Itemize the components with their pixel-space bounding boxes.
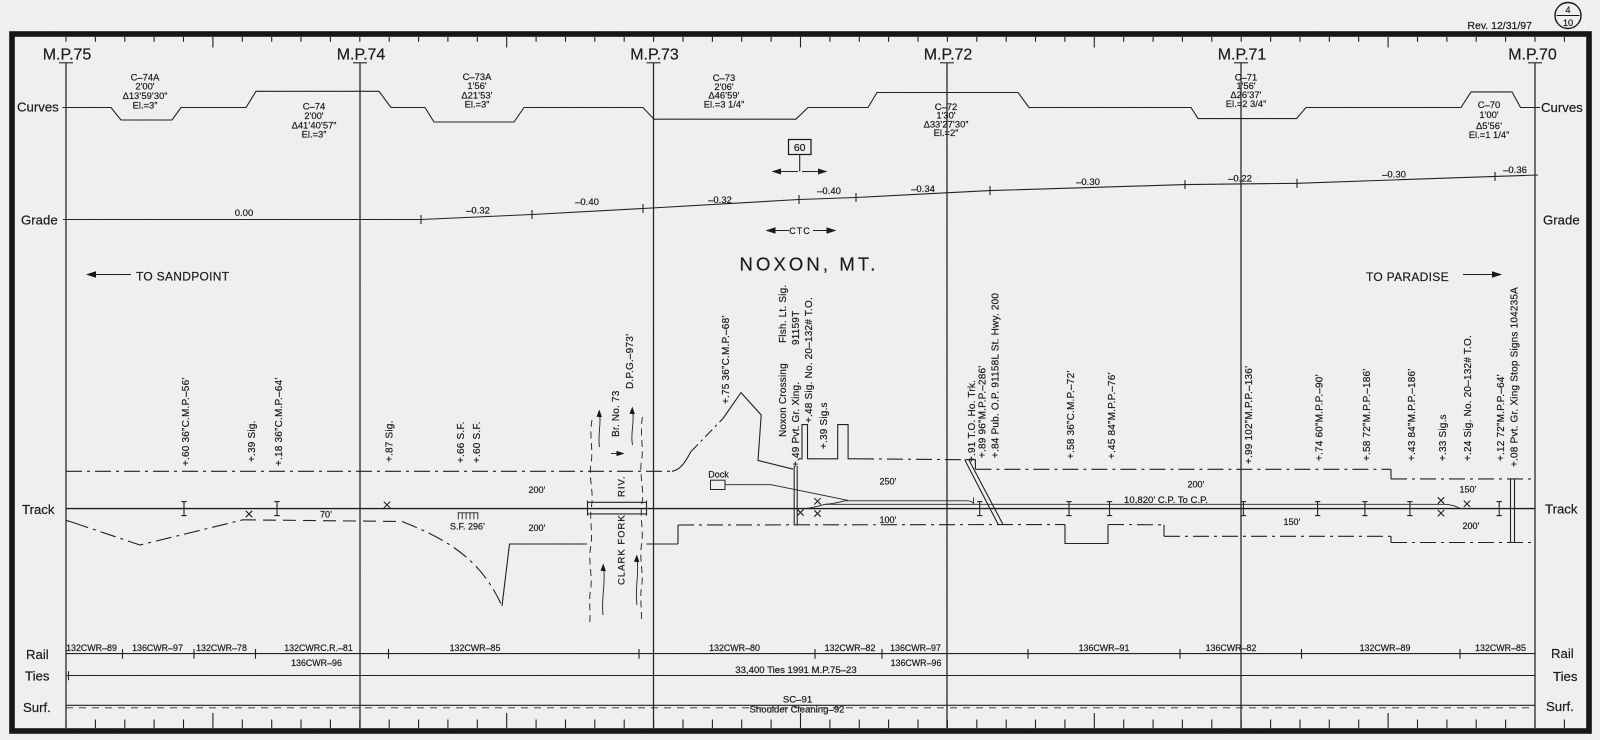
svg-text:+.75 36”C.M.P.–68’: +.75 36”C.M.P.–68’ bbox=[721, 315, 732, 404]
svg-text:132CWR–89: 132CWR–89 bbox=[1360, 643, 1411, 653]
svg-text:El.=3 1/4”: El.=3 1/4” bbox=[704, 99, 744, 110]
svg-text:Track: Track bbox=[22, 502, 55, 517]
svg-text:Br. No. 73: Br. No. 73 bbox=[611, 390, 622, 437]
svg-text:El.=1 1/4”: El.=1 1/4” bbox=[1469, 129, 1509, 140]
svg-text:+.48 Sig. No. 20–132# T.O.: +.48 Sig. No. 20–132# T.O. bbox=[804, 297, 815, 423]
svg-text:CLARK FORK: CLARK FORK bbox=[617, 514, 628, 585]
svg-text:+.66 S.F.: +.66 S.F. bbox=[456, 421, 467, 463]
svg-text:–0.22: –0.22 bbox=[1228, 174, 1252, 185]
svg-text:132CWR–78: 132CWR–78 bbox=[196, 643, 247, 653]
svg-text:1'00': 1'00' bbox=[1479, 109, 1498, 120]
svg-text:136CWR–82: 136CWR–82 bbox=[1206, 643, 1257, 653]
svg-text:El.=2 3/4”: El.=2 3/4” bbox=[1226, 98, 1266, 109]
svg-text:–0.30: –0.30 bbox=[1076, 177, 1100, 188]
svg-text:+.08 Pvt. Gr. Xing Stop Signs: +.08 Pvt. Gr. Xing Stop Signs 104235A bbox=[1510, 287, 1521, 467]
svg-text:+.84 Pub. O.P. 91158L St. Hwy.: +.84 Pub. O.P. 91158L St. Hwy. 200 bbox=[991, 293, 1002, 458]
svg-text:M.P.71: M.P.71 bbox=[1218, 47, 1267, 64]
svg-text:–0.34: –0.34 bbox=[911, 184, 935, 195]
svg-text:136CWR–96: 136CWR–96 bbox=[291, 658, 342, 668]
svg-text:200’: 200’ bbox=[528, 485, 545, 495]
svg-text:–0.32: –0.32 bbox=[708, 195, 732, 206]
svg-text:+.58 36”C.M.P.–72’: +.58 36”C.M.P.–72’ bbox=[1066, 370, 1077, 459]
svg-text:El.=2”: El.=2” bbox=[934, 127, 959, 138]
svg-text:D.P.G.–973’: D.P.G.–973’ bbox=[625, 334, 636, 389]
svg-text:Grade: Grade bbox=[1543, 213, 1580, 228]
svg-text:136CWR–91: 136CWR–91 bbox=[1079, 643, 1130, 653]
svg-text:+.58 72”M.P.P.–186’: +.58 72”M.P.P.–186’ bbox=[1362, 368, 1373, 461]
svg-text:CTC: CTC bbox=[789, 226, 811, 236]
svg-text:–0.40: –0.40 bbox=[817, 186, 841, 197]
svg-text:10,820’ C.P. To C.P.: 10,820’ C.P. To C.P. bbox=[1124, 495, 1208, 506]
svg-text:100’: 100’ bbox=[879, 515, 896, 525]
svg-text:0.00: 0.00 bbox=[235, 208, 254, 219]
svg-text:+.87 Sig.: +.87 Sig. bbox=[385, 420, 396, 462]
svg-text:+.60 S.F.: +.60 S.F. bbox=[472, 421, 483, 463]
svg-text:El.=3”: El.=3” bbox=[133, 99, 158, 110]
svg-text:4: 4 bbox=[1565, 5, 1570, 15]
svg-text:+.39 Sig.s: +.39 Sig.s bbox=[819, 402, 830, 449]
svg-text:NOXON, MT.: NOXON, MT. bbox=[740, 254, 879, 275]
svg-text:200’: 200’ bbox=[1187, 480, 1204, 490]
svg-text:M.P.74: M.P.74 bbox=[337, 47, 386, 64]
svg-text:150’: 150’ bbox=[1283, 517, 1300, 527]
svg-text:132CWR–80: 132CWR–80 bbox=[709, 643, 760, 653]
svg-text:136CWR–97: 136CWR–97 bbox=[132, 643, 183, 653]
svg-text:132CWR–82: 132CWR–82 bbox=[825, 643, 876, 653]
svg-text:+.89 96”M.P.P.–286’: +.89 96”M.P.P.–286’ bbox=[978, 365, 989, 458]
svg-text:+.24 Sig. No. 20–132# T.O.: +.24 Sig. No. 20–132# T.O. bbox=[1463, 335, 1474, 461]
svg-text:Surf.: Surf. bbox=[23, 700, 51, 715]
svg-text:Ties: Ties bbox=[1553, 669, 1578, 684]
svg-text:+.39 Sig.: +.39 Sig. bbox=[247, 420, 258, 462]
svg-text:M.P.73: M.P.73 bbox=[630, 47, 679, 64]
svg-text:–0.36: –0.36 bbox=[1503, 165, 1527, 176]
svg-text:Ties: Ties bbox=[25, 669, 50, 684]
svg-text:Rail: Rail bbox=[1551, 646, 1574, 661]
svg-text:Flsh. Lt. Sig.: Flsh. Lt. Sig. bbox=[778, 285, 789, 343]
svg-text:70’: 70’ bbox=[320, 510, 332, 520]
svg-text:Shoulder Cleaning–92: Shoulder Cleaning–92 bbox=[750, 704, 845, 715]
svg-text:132CWR–85: 132CWR–85 bbox=[1475, 643, 1526, 653]
svg-text:91159T: 91159T bbox=[791, 311, 802, 345]
svg-text:M.P.72: M.P.72 bbox=[924, 47, 973, 64]
svg-text:200’: 200’ bbox=[528, 523, 545, 533]
svg-text:El.=3”: El.=3” bbox=[302, 129, 327, 140]
svg-text:–0.40: –0.40 bbox=[575, 197, 599, 208]
svg-text:+.18 36”C.M.P.–64’: +.18 36”C.M.P.–64’ bbox=[274, 377, 285, 466]
svg-text:M.P.75: M.P.75 bbox=[43, 47, 92, 64]
svg-text:S.F. 296’: S.F. 296’ bbox=[450, 522, 485, 532]
svg-text:+.43 84”M.P.P.–186’: +.43 84”M.P.P.–186’ bbox=[1407, 368, 1418, 461]
svg-text:132CWR–89: 132CWR–89 bbox=[66, 643, 117, 653]
svg-text:+.33 Sig.s: +.33 Sig.s bbox=[1438, 414, 1449, 461]
svg-text:250’: 250’ bbox=[879, 477, 896, 487]
svg-text:Rev. 12/31/97: Rev. 12/31/97 bbox=[1467, 20, 1532, 32]
svg-text:Surf.: Surf. bbox=[1546, 699, 1574, 714]
svg-text:Curves: Curves bbox=[1541, 100, 1583, 115]
svg-text:136CWR–96: 136CWR–96 bbox=[891, 658, 942, 668]
svg-text:+.45 84”M.P.P.–76’: +.45 84”M.P.P.–76’ bbox=[1107, 372, 1118, 459]
svg-text:200’: 200’ bbox=[1462, 521, 1479, 531]
svg-text:132CWRC.R.–81: 132CWRC.R.–81 bbox=[284, 643, 353, 653]
svg-text:33,400 Ties 1991 M.P.75–23: 33,400 Ties 1991 M.P.75–23 bbox=[735, 665, 856, 676]
svg-text:Track: Track bbox=[1545, 502, 1578, 517]
svg-text:Dock: Dock bbox=[708, 470, 729, 480]
svg-text:150’: 150’ bbox=[1459, 485, 1476, 495]
svg-text:+.60 36”C.M.P.–56’: +.60 36”C.M.P.–56’ bbox=[181, 377, 192, 466]
svg-text:132CWR–85: 132CWR–85 bbox=[450, 643, 501, 653]
svg-text:+.49 Pvt. Gr. Xing.: +.49 Pvt. Gr. Xing. bbox=[791, 382, 802, 467]
svg-text:60: 60 bbox=[794, 142, 806, 154]
svg-text:+.12 72”M.P.P.–64’: +.12 72”M.P.P.–64’ bbox=[1496, 374, 1507, 461]
svg-text:10: 10 bbox=[1563, 18, 1573, 28]
svg-text:RIV.: RIV. bbox=[617, 475, 628, 497]
svg-text:Rail: Rail bbox=[26, 647, 49, 662]
svg-text:Grade: Grade bbox=[21, 213, 58, 228]
svg-text:+.91 T.O. Ho. Trk.: +.91 T.O. Ho. Trk. bbox=[967, 380, 978, 462]
svg-text:–0.30: –0.30 bbox=[1382, 169, 1406, 180]
svg-text:El.=3”: El.=3” bbox=[465, 98, 490, 109]
svg-text:TO PARADISE: TO PARADISE bbox=[1366, 270, 1449, 284]
svg-text:M.P.70: M.P.70 bbox=[1508, 47, 1557, 64]
svg-text:136CWR–97: 136CWR–97 bbox=[890, 643, 941, 653]
svg-text:Noxon Crossing: Noxon Crossing bbox=[778, 363, 789, 437]
svg-text:+.74 60”M.P.P.–90’: +.74 60”M.P.P.–90’ bbox=[1315, 374, 1326, 461]
svg-text:Curves: Curves bbox=[17, 100, 59, 115]
svg-text:TO SANDPOINT: TO SANDPOINT bbox=[136, 270, 230, 284]
svg-text:–0.32: –0.32 bbox=[466, 206, 490, 217]
svg-text:+.99 102”M.P.P.–136’: +.99 102”M.P.P.–136’ bbox=[1244, 366, 1255, 464]
